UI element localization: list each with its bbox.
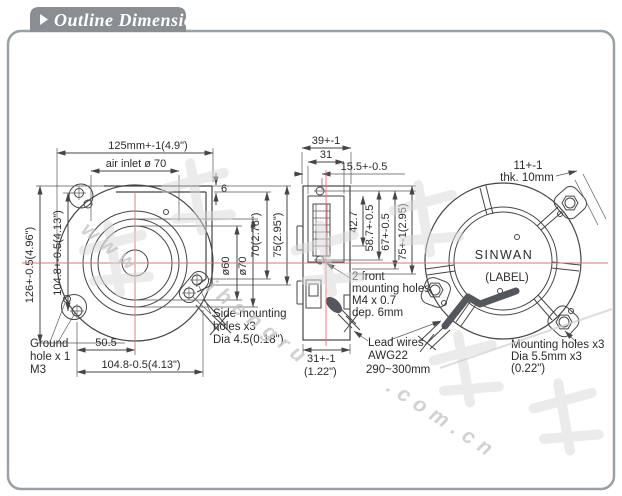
svg-text:11+-1: 11+-1 xyxy=(514,160,543,172)
dim-depth: 39+-1 xyxy=(312,135,340,147)
svg-text:hole x 1: hole x 1 xyxy=(30,351,70,363)
svg-text:M4 x 0.7: M4 x 0.7 xyxy=(352,295,396,307)
dim-step: 6 xyxy=(221,183,227,195)
dim-height: 126+-0.5(4.96") xyxy=(24,227,36,303)
dim-d70: ø70 xyxy=(237,257,249,276)
dim-d2: 58.7+-0.5 xyxy=(364,205,376,252)
svg-text:Dia 5.5mm x3: Dia 5.5mm x3 xyxy=(511,351,582,363)
svg-text:mounting holes: mounting holes xyxy=(352,283,430,295)
brand-text: SINWAN xyxy=(475,248,534,262)
page-title: Outline Dimensions xyxy=(54,10,212,30)
dim-hole-offset: 15.5+-0.5 xyxy=(341,161,388,173)
svg-text:290~300mm: 290~300mm xyxy=(366,364,430,376)
svg-text:Mounting holes x3: Mounting holes x3 xyxy=(511,339,604,351)
dim-air-inlet: air inlet ø 70 xyxy=(106,158,167,170)
dim-d1: 42.7 xyxy=(348,211,360,232)
outline-dimensions-drawing: Outline Dimensions xyxy=(0,0,622,496)
dim-outlet-outer: 75(2.95") xyxy=(272,213,284,258)
dim-width: 125mm+-1(4.9") xyxy=(108,140,187,152)
svg-text:AWG22: AWG22 xyxy=(368,350,408,362)
dim-hole-span-left: 104.8+-0.5(4.13") xyxy=(52,210,64,296)
svg-text:(0.22"): (0.22") xyxy=(511,363,545,375)
dim-hole-span-bottom: 104.8-0.5(4.13") xyxy=(101,359,180,371)
svg-text:M3: M3 xyxy=(30,364,46,376)
dim-d60: ø60 xyxy=(220,257,232,276)
dim-d3: 67+-0.5 xyxy=(380,213,392,251)
label-text: (LABEL) xyxy=(485,272,529,284)
svg-text:Ground: Ground xyxy=(30,338,68,350)
svg-text:(1.22"): (1.22") xyxy=(304,366,337,378)
svg-text:thk. 10mm: thk. 10mm xyxy=(500,172,554,184)
svg-text:dep. 6mm: dep. 6mm xyxy=(352,307,403,319)
dim-inner-depth: 31 xyxy=(320,149,332,161)
dim-center-offset: 50.5 xyxy=(95,337,116,349)
svg-text:Lead wires: Lead wires xyxy=(368,337,424,349)
